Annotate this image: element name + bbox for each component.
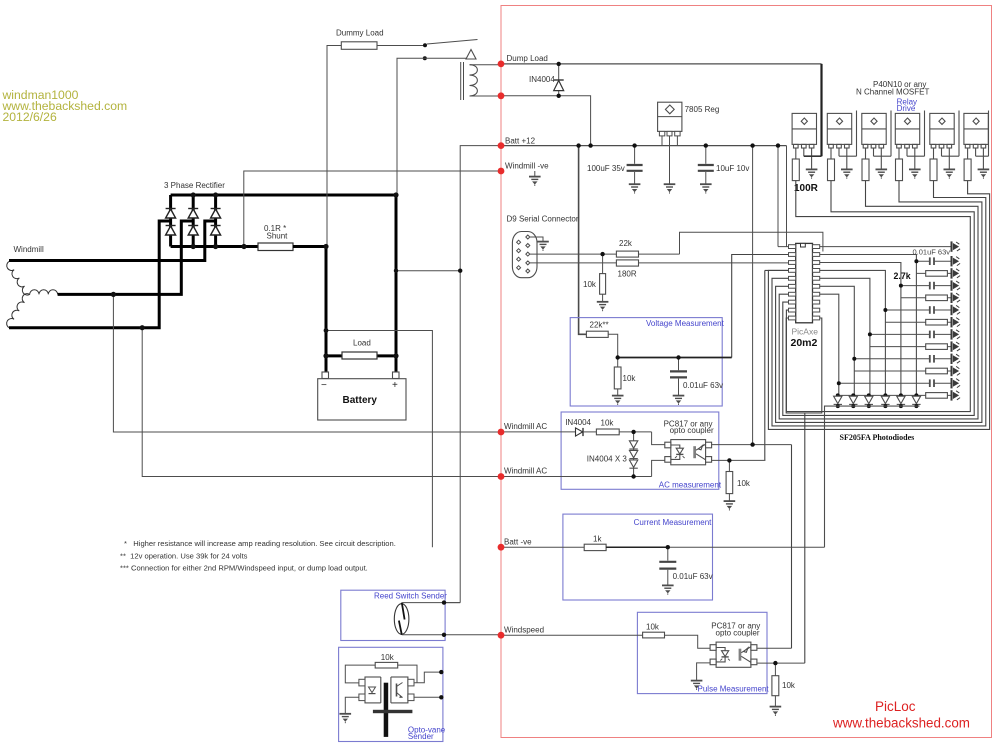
svg-text:Windmill -ve: Windmill -ve [505, 162, 549, 171]
svg-text:N Channel MOSFET: N Channel MOSFET [856, 88, 929, 97]
svg-text:2012/6/26: 2012/6/26 [3, 110, 57, 124]
svg-text:10k: 10k [623, 374, 637, 383]
svg-text:0.01uF 63v: 0.01uF 63v [673, 572, 713, 581]
svg-text:** 12v operation. Use 39k for: ** 12v operation. Use 39k for 24 volts [120, 552, 248, 561]
svg-text:opto coupler: opto coupler [670, 426, 714, 435]
svg-text:SF205FA Photodiodes: SF205FA Photodiodes [840, 433, 915, 442]
svg-text:Dummy Load: Dummy Load [336, 29, 384, 38]
svg-text:Batt +12: Batt +12 [505, 137, 536, 146]
svg-text:D9 Serial Connector: D9 Serial Connector [507, 215, 579, 224]
svg-text:22k**: 22k** [590, 321, 609, 330]
svg-text:Sender: Sender [408, 732, 434, 741]
svg-text:Battery: Battery [343, 395, 378, 406]
svg-text:Windmill AC: Windmill AC [504, 422, 547, 431]
svg-text:7805 Reg: 7805 Reg [685, 105, 720, 114]
svg-text:20m2: 20m2 [791, 337, 818, 349]
svg-text:+: + [392, 380, 398, 391]
svg-text:* Higher resistance will inc: * Higher resistance will increase amp re… [124, 539, 396, 548]
svg-text:Pulse Measurement: Pulse Measurement [698, 685, 770, 694]
svg-text:2.7k: 2.7k [894, 271, 911, 281]
svg-text:Voltage Measurement: Voltage Measurement [646, 319, 725, 328]
svg-text:Windmill AC: Windmill AC [504, 467, 547, 476]
svg-text:0.01uF 63v: 0.01uF 63v [683, 381, 723, 390]
svg-text:3 Phase Rectifier: 3 Phase Rectifier [164, 181, 225, 190]
svg-text:180R: 180R [618, 270, 637, 279]
svg-text:Shunt: Shunt [267, 232, 289, 241]
svg-text:Current Measurement: Current Measurement [634, 518, 713, 527]
svg-text:PicAxe: PicAxe [792, 327, 819, 337]
svg-text:PicLoc: PicLoc [875, 699, 916, 714]
svg-text:www.thebackshed.com: www.thebackshed.com [832, 716, 970, 731]
svg-text:Reed Switch Sender: Reed Switch Sender [374, 592, 447, 601]
svg-text:10k: 10k [737, 479, 751, 488]
svg-text:0.01uF 63v: 0.01uF 63v [913, 248, 951, 257]
svg-text:1k: 1k [593, 535, 602, 544]
svg-text:IN4004 X 3: IN4004 X 3 [587, 455, 628, 464]
svg-text:10k: 10k [381, 653, 395, 662]
svg-text:Windspeed: Windspeed [504, 626, 544, 635]
svg-text:100uF 35v: 100uF 35v [587, 164, 625, 173]
svg-text:10k: 10k [583, 280, 597, 289]
svg-text:Windmill: Windmill [14, 245, 44, 254]
svg-text:100R: 100R [794, 183, 819, 194]
svg-text:opto coupler: opto coupler [716, 629, 760, 638]
svg-text:Batt -ve: Batt -ve [504, 538, 532, 547]
svg-text:Drive: Drive [897, 104, 916, 113]
svg-text:IN4004: IN4004 [565, 418, 591, 427]
svg-text:IN4004: IN4004 [529, 75, 555, 84]
svg-text:10k: 10k [601, 419, 615, 428]
svg-text:10uF 10v: 10uF 10v [716, 164, 749, 173]
svg-text:*** Connection for either 2nd: *** Connection for either 2nd RPM/Windsp… [120, 564, 368, 573]
svg-text:10k: 10k [646, 623, 660, 632]
svg-text:Dump Load: Dump Load [507, 54, 548, 63]
svg-text:10k: 10k [782, 681, 796, 690]
svg-text:−: − [321, 380, 327, 391]
svg-text:Load: Load [353, 339, 371, 348]
svg-text:AC measurement: AC measurement [659, 481, 722, 490]
svg-text:22k: 22k [619, 239, 633, 248]
